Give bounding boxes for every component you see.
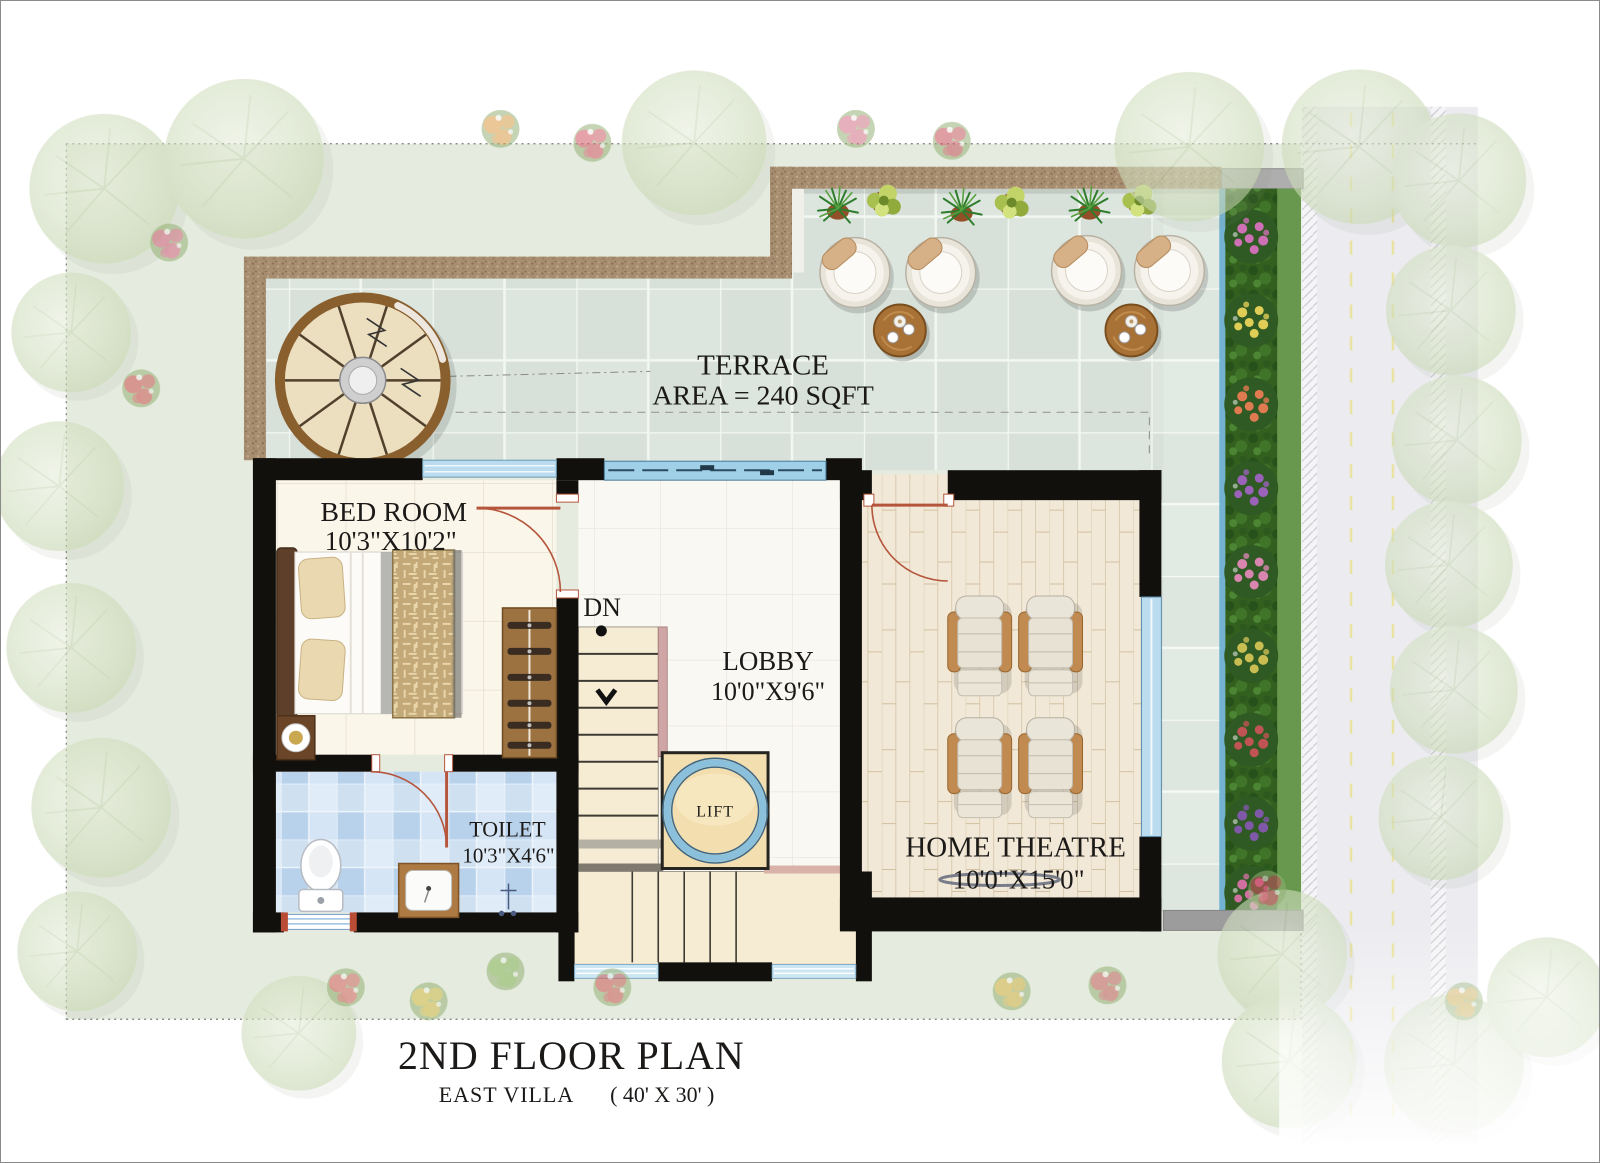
bedroom-label: BED ROOM: [320, 497, 467, 528]
toilet-label: TOILET: [469, 817, 546, 842]
flower-bush: [150, 224, 188, 262]
recliner-seat: [948, 596, 1012, 696]
pillow: [298, 557, 346, 620]
villa-subtitle: EAST VILLA: [439, 1082, 574, 1107]
wash-basin: [399, 864, 459, 918]
hedge-bush: [1224, 293, 1278, 347]
wall-segment: [1139, 470, 1161, 597]
wall-segment: [253, 912, 284, 932]
wall-segment: [253, 458, 423, 480]
flower-bush: [482, 110, 520, 148]
toilet-dims: 10'3"X4'6": [462, 844, 554, 868]
recliner-seat: [1019, 718, 1083, 818]
stair-window: [772, 964, 856, 978]
terrace-label: TERRACE: [697, 349, 829, 381]
page-title: 2ND FLOOR PLAN: [398, 1033, 745, 1078]
flower-bush: [837, 110, 875, 148]
pillow: [298, 638, 346, 701]
lift-label: LIFT: [696, 804, 734, 821]
flower-bush: [993, 972, 1031, 1010]
hedge-flower-bushes: [1224, 210, 1278, 920]
hedge-bush: [1224, 713, 1278, 767]
recliner-seat: [1019, 596, 1083, 696]
flower-bush: [327, 968, 365, 1006]
wall-segment: [840, 480, 862, 929]
wardrobe: [503, 608, 557, 758]
terrace-area-label: AREA = 240 SQFT: [652, 380, 873, 411]
bed: [277, 548, 463, 718]
nightstand: [277, 716, 315, 760]
floor-plan-canvas: TERRACE AREA = 240 SQFT BED ROOM 10'3"X1…: [0, 0, 1600, 1163]
plot-size-subtitle: ( 40' X 30' ): [610, 1082, 714, 1107]
wall-segment: [354, 912, 579, 932]
blanket: [393, 550, 455, 718]
bedroom-window: [423, 460, 557, 477]
flower-bush: [573, 124, 611, 162]
recliner-seat: [948, 718, 1012, 818]
flower-bush: [593, 968, 631, 1006]
hedge-edge-line: [1219, 189, 1225, 911]
hedge-bush: [1224, 545, 1278, 599]
bedroom-dims: 10'3"X10'2": [325, 526, 457, 556]
wall-segment: [658, 962, 772, 981]
wall-segment: [253, 458, 276, 932]
flower-bush: [1089, 966, 1127, 1004]
hedge-bush: [1224, 461, 1278, 515]
flower-bush: [933, 122, 971, 160]
flower-bush: [122, 369, 160, 407]
home-theatre-label: HOME THEATRE: [905, 832, 1126, 864]
wall-segment: [558, 872, 574, 982]
wall-segment: [556, 458, 604, 480]
wall-return: [792, 189, 804, 273]
lobby-label: LOBBY: [722, 646, 813, 676]
road-fade: [1279, 919, 1598, 1162]
lobby-dims: 10'0"X9'6": [711, 677, 825, 706]
home-theatre-dims: 10'0"X15'0": [953, 864, 1085, 894]
stair-down-label: DN: [583, 593, 621, 622]
floor-plan-drawing: TERRACE AREA = 240 SQFT BED ROOM 10'3"X1…: [1, 1, 1599, 1162]
wall-segment: [948, 470, 1162, 500]
hedge-bush: [1224, 629, 1278, 683]
flower-bush: [1248, 871, 1286, 909]
toilet-window: [284, 914, 354, 929]
stair-side-wall: [658, 627, 667, 757]
flower-bush: [487, 952, 525, 990]
wall-segment: [840, 897, 1161, 931]
water-closet: [299, 840, 343, 912]
flower-bush: [410, 982, 448, 1020]
wall-segment: [856, 872, 872, 982]
hedge-bush: [1224, 797, 1278, 851]
hedge-bush: [1224, 377, 1278, 431]
stair-start-dot: [596, 625, 607, 636]
stair-landing: [574, 872, 858, 965]
